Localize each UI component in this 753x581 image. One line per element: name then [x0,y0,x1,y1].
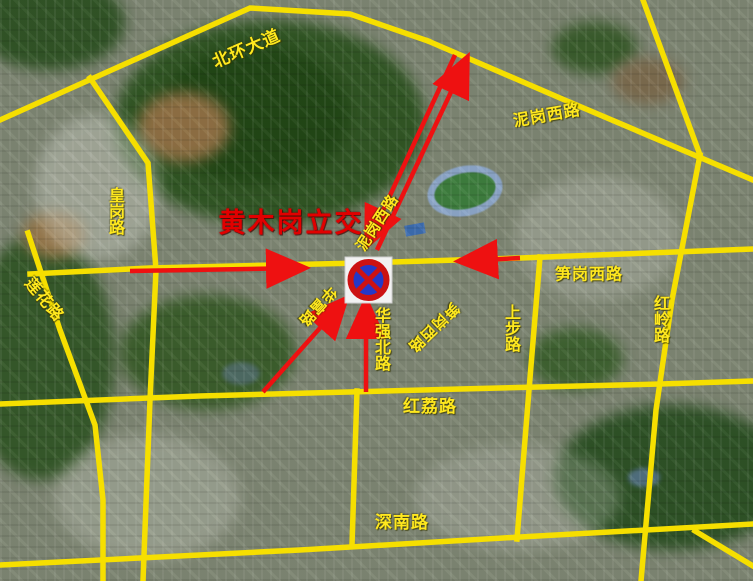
road-huanggang [90,78,156,581]
road-nigangxi [428,41,753,180]
road-label-shennan: 深南路 [375,515,429,533]
road-huaqiang-south [352,391,357,545]
road-label-huanggang: 皇岗路 [107,187,123,235]
interchange-title: 黄木岗立交 [219,210,364,238]
road-label-shangbu: 上步路 [503,304,519,352]
road-shangbu [517,257,540,539]
route-arrow-east [462,258,520,261]
road-label-sungang-main: 笋岗西路 [555,267,623,284]
road-overlay-layer [0,0,753,581]
road-label-hongling: 红岭路 [652,295,668,343]
road-branch-se [695,531,753,566]
route-arrow-west [130,268,302,271]
road-label-huaqiangbei: 华强北路 [373,307,389,371]
no-stopping-sign-icon [345,257,392,303]
road-hongling [641,155,700,581]
road-label-hongli: 红荔路 [403,399,457,417]
route-line-northeast-outbound [377,60,466,250]
satellite-map: 北环大道 泥岗西路 皇岗路 莲花路 黄木岗立交 泥岗西路 笋岗西路 红岭路 华强… [0,0,753,581]
road-topright [643,0,700,155]
road-hongli [0,381,753,404]
